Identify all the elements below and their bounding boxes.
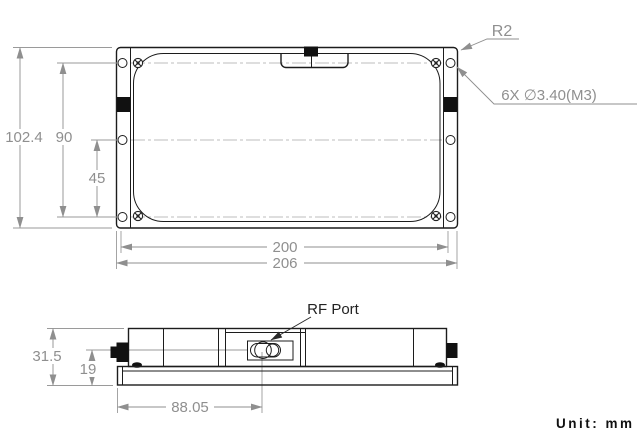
dim-overall-width: 206: [272, 255, 297, 272]
wall-marker-right: [444, 97, 457, 112]
corner-screw: [431, 211, 440, 220]
top-tab-block: [304, 47, 318, 57]
callout-rf-port: RF Port: [271, 301, 360, 340]
mounting-hole: [446, 213, 455, 222]
dim-side-overall-height: 31.5: [32, 348, 61, 365]
callout-corner-radius-label: R2: [492, 23, 513, 40]
side-view: 31.5 19 88.05 RF Port: [25, 301, 458, 416]
top-view: 102.4 90 45 200 206 R2 6X ∅3.40(M3): [3, 23, 637, 272]
left-connector: [117, 343, 129, 363]
mounting-hole: [118, 213, 127, 222]
corner-screw: [431, 58, 440, 67]
unit-note: Unit: mm: [556, 416, 635, 431]
body-divisions: [164, 329, 414, 367]
base-plate: [118, 367, 458, 386]
mounting-hole: [446, 136, 455, 145]
flange-outline: [117, 48, 458, 229]
corner-screw: [133, 211, 142, 220]
mounting-hole: [118, 136, 127, 145]
dim-port-center-height: 19: [80, 361, 97, 378]
engineering-drawing-canvas: 102.4 90 45 200 206 R2 6X ∅3.40(M3): [0, 0, 642, 437]
rf-port-connector-inner: [266, 344, 278, 356]
left-connector-cap: [111, 347, 117, 359]
callout-rf-port-label: RF Port: [307, 301, 360, 318]
dim-overall-height: 102.4: [5, 129, 43, 146]
dim-hole-pitch-width: 200: [272, 239, 297, 256]
callout-mounting-holes-label: 6X ∅3.40(M3): [501, 87, 597, 104]
cavity-outline: [134, 54, 441, 222]
callout-mounting-holes: 6X ∅3.40(M3): [457, 67, 637, 104]
right-connector: [447, 343, 458, 358]
mounting-hole: [118, 59, 127, 68]
dim-hole-pitch-height: 90: [56, 129, 73, 146]
drawing-svg: 102.4 90 45 200 206 R2 6X ∅3.40(M3): [0, 0, 642, 437]
enclosure-body: [129, 329, 447, 367]
rf-port: [248, 341, 294, 360]
corner-screw: [133, 58, 142, 67]
dim-port-center-offset: 88.05: [171, 399, 209, 416]
dim-hole-pitch-half: 45: [89, 170, 106, 187]
top-view-extension-lines: [13, 48, 457, 270]
mounting-hole: [446, 59, 455, 68]
wall-marker-left: [117, 97, 130, 112]
callout-corner-radius: R2: [461, 23, 519, 50]
corner-screws: [133, 58, 440, 220]
rf-port-connector-outer: [255, 342, 272, 359]
